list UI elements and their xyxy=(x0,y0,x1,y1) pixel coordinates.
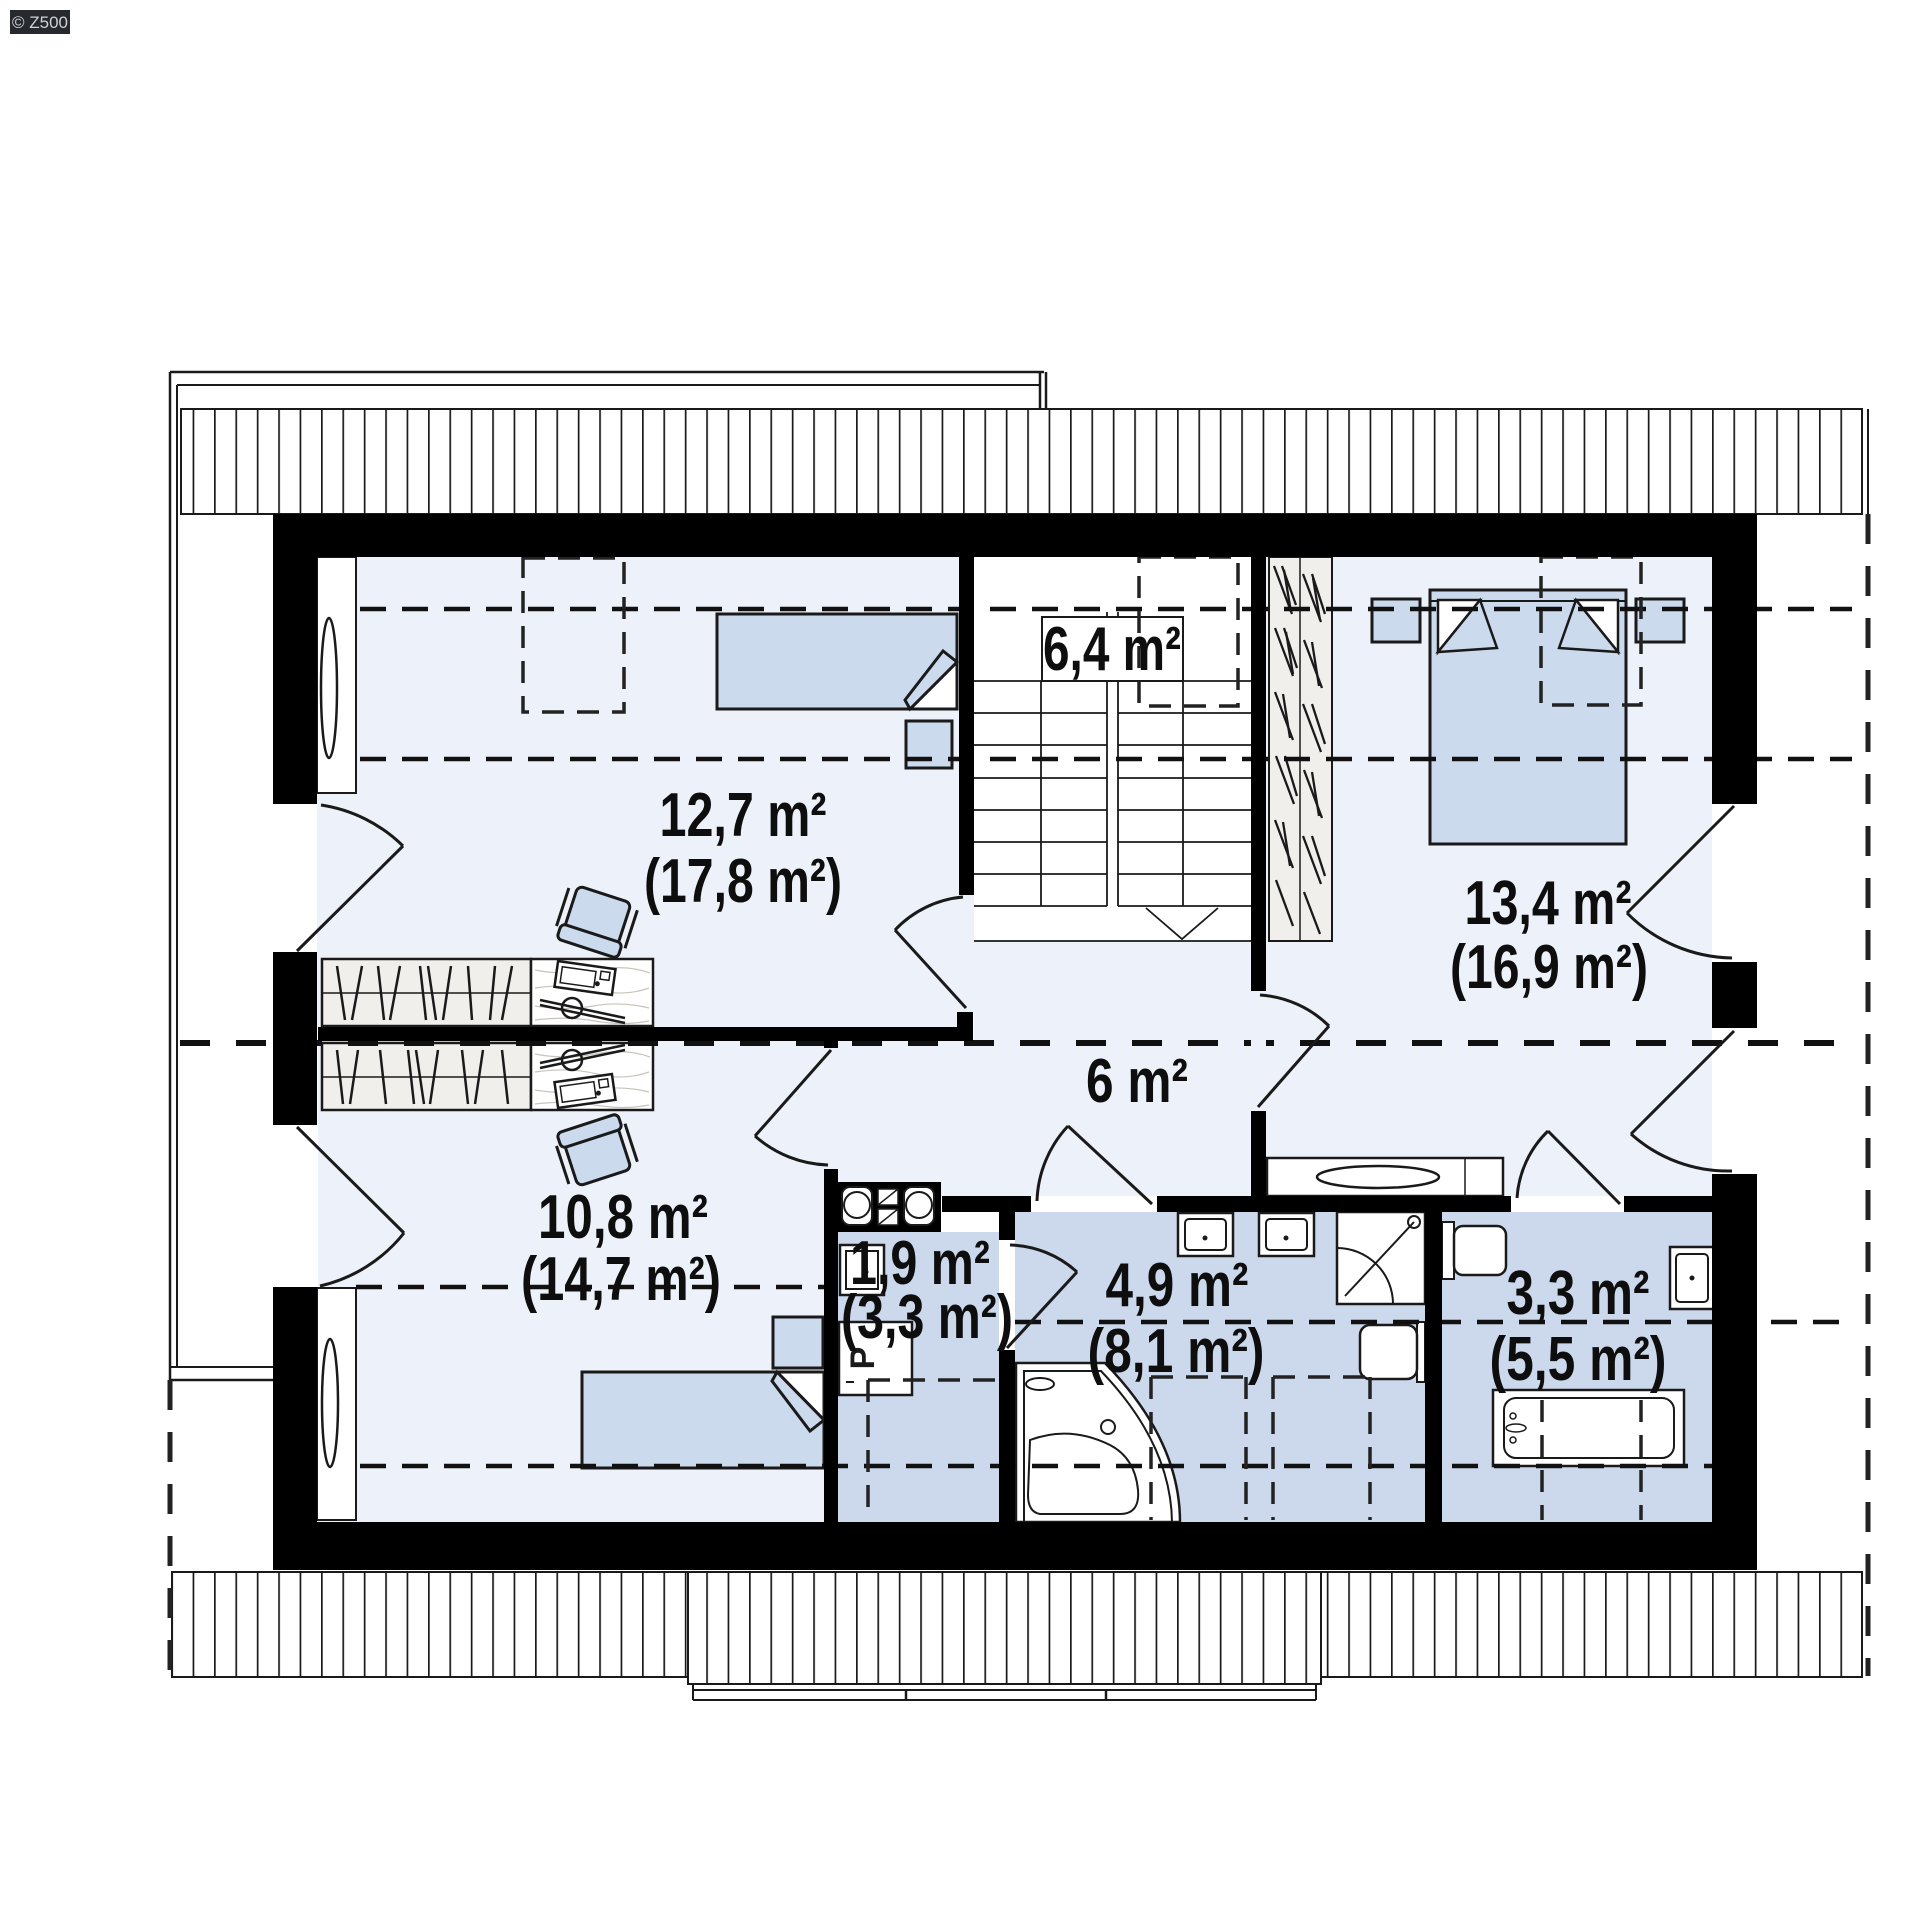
svg-text:6 m²: 6 m² xyxy=(1086,1047,1188,1116)
svg-text:(8,1 m²): (8,1 m²) xyxy=(1088,1317,1265,1386)
svg-text:13,4 m²: 13,4 m² xyxy=(1465,869,1632,938)
svg-text:3,3 m²: 3,3 m² xyxy=(1507,1259,1650,1328)
svg-text:(5,5 m²): (5,5 m²) xyxy=(1490,1325,1667,1394)
svg-text:(17,8 m²): (17,8 m²) xyxy=(644,847,842,916)
svg-text:4,9 m²: 4,9 m² xyxy=(1106,1251,1249,1320)
svg-text:(14,7 m²): (14,7 m²) xyxy=(521,1245,721,1314)
svg-text:6,4 m²: 6,4 m² xyxy=(1043,615,1181,684)
svg-text:12,7 m²: 12,7 m² xyxy=(660,781,827,850)
svg-text:(16,9 m²): (16,9 m²) xyxy=(1450,933,1648,1002)
svg-text:10,8 m²: 10,8 m² xyxy=(538,1183,708,1252)
svg-text:(3,3 m²): (3,3 m²) xyxy=(841,1283,1013,1352)
svg-text:© Z500: © Z500 xyxy=(12,13,68,32)
